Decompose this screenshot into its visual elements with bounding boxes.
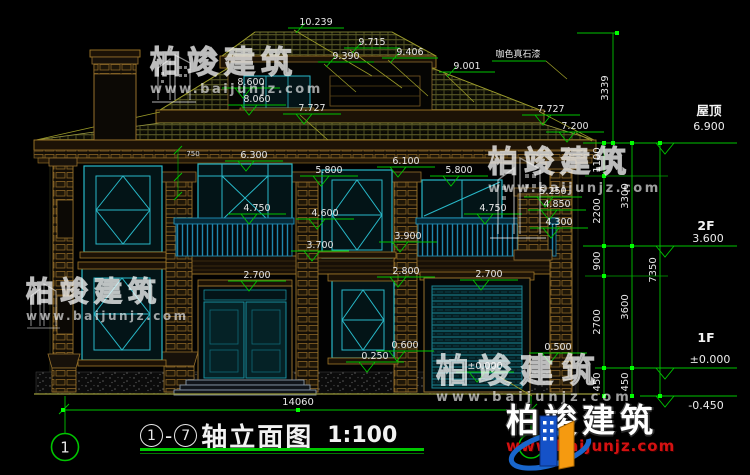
svg-text:3.700: 3.700 xyxy=(306,240,333,251)
dim-text: 7350 xyxy=(648,257,659,282)
upper-fascia xyxy=(156,110,544,123)
svg-text:4.750: 4.750 xyxy=(479,203,506,214)
title-axis-end: 7 xyxy=(174,424,197,447)
balcony-railing xyxy=(176,224,292,256)
material-note: 咖色真石漆 xyxy=(495,48,540,60)
left-bay-window-2f xyxy=(80,166,166,258)
dim-text: 2200 xyxy=(592,198,603,223)
dim-text: 2700 xyxy=(592,309,603,334)
svg-text:2.800: 2.800 xyxy=(392,266,419,277)
cad-elevation-screenshot: 10.239 9.715 9.390 9.406 9.001 咖色真石漆 8.6… xyxy=(0,0,750,475)
svg-text:6.300: 6.300 xyxy=(240,150,267,161)
svg-text:5.250: 5.250 xyxy=(539,186,566,197)
svg-text:8.600: 8.600 xyxy=(237,77,264,88)
entrance-door xyxy=(198,280,292,380)
cornice-lip xyxy=(38,158,592,163)
garage xyxy=(420,272,534,392)
garage-door xyxy=(432,286,522,388)
svg-text:2.700: 2.700 xyxy=(243,270,270,281)
title-separator: - xyxy=(165,424,172,448)
svg-text:3.600: 3.600 xyxy=(692,232,724,245)
chimney xyxy=(90,50,140,140)
dim-text: 9.715 xyxy=(358,37,385,48)
svg-text:4.600: 4.600 xyxy=(311,208,338,219)
svg-text:7.727: 7.727 xyxy=(298,103,325,114)
clerestory-vent xyxy=(330,76,420,106)
dim-text: 9.406 xyxy=(396,47,423,58)
title-axis-start: 1 xyxy=(140,424,163,447)
title-scale: 1:100 xyxy=(327,423,397,448)
dim-text: 3600 xyxy=(620,294,631,319)
left-bay-window-1f xyxy=(78,262,166,366)
balcony-rail-top xyxy=(174,218,294,224)
dim-text: 450 xyxy=(592,372,603,391)
dentil-course xyxy=(34,150,596,158)
svg-text:3.900: 3.900 xyxy=(394,231,421,242)
dim-text: 14060 xyxy=(282,397,314,408)
svg-text:2F: 2F xyxy=(697,218,714,233)
entrance-steps xyxy=(174,380,316,395)
company-logo: 柏竣建筑 www.baijunjz.com xyxy=(506,404,675,455)
svg-text:6.900: 6.900 xyxy=(693,120,725,133)
svg-text:5.800: 5.800 xyxy=(315,165,342,176)
svg-text:1F: 1F xyxy=(697,330,714,345)
company-logo-icon xyxy=(506,404,598,474)
svg-text:6.100: 6.100 xyxy=(392,156,419,167)
svg-text:2.700: 2.700 xyxy=(475,269,502,280)
storey-labels: 屋顶 6.900 2F 3.600 1F ±0.000 -0.450 xyxy=(688,103,730,412)
dim-text: 9.001 xyxy=(453,61,480,72)
title-underline xyxy=(140,448,424,451)
dim-text: 450 xyxy=(620,372,631,391)
dim-text: 750 xyxy=(186,150,199,158)
dim-text: 3339 xyxy=(600,75,611,100)
svg-text:7.727: 7.727 xyxy=(537,104,564,115)
svg-text:4.850: 4.850 xyxy=(543,199,570,210)
svg-text:±0.000: ±0.000 xyxy=(690,353,731,366)
svg-text:4.300: 4.300 xyxy=(545,217,572,228)
main-eaves-fascia xyxy=(34,140,596,150)
dim-text: 1100 xyxy=(592,147,603,172)
svg-text:0.250: 0.250 xyxy=(361,351,388,362)
svg-text:屋顶: 屋顶 xyxy=(696,103,722,118)
svg-text:-0.450: -0.450 xyxy=(688,399,723,412)
svg-text:5.800: 5.800 xyxy=(445,165,472,176)
storey-band xyxy=(170,256,564,274)
svg-text:0.600: 0.600 xyxy=(391,340,418,351)
dim-text: 9.390 xyxy=(332,51,359,62)
svg-text:±0.000: ±0.000 xyxy=(467,361,502,372)
dim-text: 3300 xyxy=(620,183,631,208)
svg-text:7.200: 7.200 xyxy=(561,121,588,132)
svg-text:4.750: 4.750 xyxy=(243,203,270,214)
dim-text: 10.239 xyxy=(299,17,332,28)
svg-text:1: 1 xyxy=(60,439,70,457)
svg-text:8.060: 8.060 xyxy=(243,94,270,105)
svg-text:0.500: 0.500 xyxy=(544,342,571,353)
dim-text: 900 xyxy=(592,251,603,270)
title-underline-thin xyxy=(140,453,424,454)
